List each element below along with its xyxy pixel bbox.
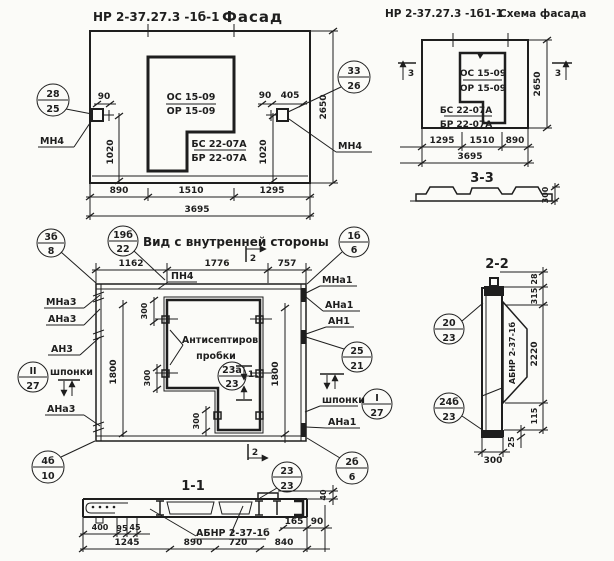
svg-text:25: 25 <box>350 346 363 357</box>
svg-text:3: 3 <box>408 69 414 79</box>
svg-text:22: 22 <box>116 244 129 255</box>
svg-text:23: 23 <box>280 481 293 492</box>
view-opening <box>167 300 260 430</box>
section-mark-2-top: 2 <box>246 246 266 264</box>
svg-text:1б: 1б <box>347 231 361 242</box>
svg-text:4б: 4б <box>41 456 55 467</box>
svg-text:2б: 2б <box>345 457 359 468</box>
facade-dim-890: 890 <box>110 186 129 196</box>
svg-text:23: 23 <box>280 466 293 477</box>
scheme-mark-os: ОС 15-09 <box>460 69 506 79</box>
section-3-3-dim-300: 300 <box>541 186 550 203</box>
facade-mark-bs: БС 22-07А <box>191 139 247 150</box>
s22-dim-25: 25 <box>507 436 516 448</box>
facade-dim-90-right: 90 <box>259 91 272 101</box>
facade-dim-3695: 3695 <box>184 205 209 215</box>
s11-dim-90: 90 <box>311 517 324 527</box>
callout-4b-10: 4б 10 <box>32 441 95 483</box>
svg-text:2: 2 <box>252 448 258 458</box>
s22-dim-28: 28 <box>530 273 539 285</box>
s22-dim-115: 115 <box>530 407 539 424</box>
scheme-drawing: НР 2-37.27.3 -1б1-1 Схема фасада ОС 15-0… <box>385 8 586 205</box>
svg-text:3: 3 <box>555 69 561 79</box>
view-label-shponki-left: шпонки <box>50 367 93 378</box>
facade-dim-1510: 1510 <box>178 186 203 196</box>
facade-dim-2650: 2650 <box>319 94 329 119</box>
s22-dim-315: 315 <box>530 287 539 304</box>
view-label-antiseptic-1: Антисептиров <box>182 335 258 346</box>
view-dim-300a: 300 <box>140 302 149 319</box>
s22-dim-2220: 2220 <box>530 341 540 366</box>
scheme-dim-1510: 1510 <box>469 136 494 146</box>
callout-28-25: 28 25 <box>37 84 92 116</box>
section-mark-3-right: 3 <box>552 61 572 80</box>
s11-dim-45: 45 <box>129 523 141 532</box>
svg-text:23: 23 <box>225 379 238 390</box>
s11-dim-400: 400 <box>92 523 109 532</box>
scheme-dim-890: 890 <box>506 136 525 146</box>
scheme-mark-br: БР 22-07А <box>440 120 492 130</box>
view-dim-1162: 1162 <box>118 259 143 269</box>
facade-mark-or: ОР 15-09 <box>167 106 216 117</box>
blueprint-sheet: НР 2-37.27.3 -1б-1 Фасад ОС 15-09 ОР 15-… <box>0 0 614 561</box>
s11-dim-95: 95 <box>116 524 128 533</box>
view-title: Вид с внутренней стороны <box>143 235 329 249</box>
section-3-3-title: 3-3 <box>470 171 494 186</box>
callout-24b-23: 24б 23 <box>434 393 484 431</box>
svg-text:10: 10 <box>41 471 55 482</box>
view-label-mna3: МНа3 <box>46 297 76 308</box>
view-label-an1: АН1 <box>328 316 350 327</box>
s22-label-abnr: АБНР 2-37-1б <box>507 322 517 385</box>
svg-text:2: 2 <box>250 254 256 264</box>
svg-text:33: 33 <box>347 66 360 77</box>
view-label-ana1: АНа1 <box>325 300 353 311</box>
joint-marks <box>156 501 281 515</box>
callout-20-23: 20 23 <box>434 303 483 344</box>
s22-panel <box>482 288 502 437</box>
svg-text:25: 25 <box>46 104 59 115</box>
s11-dim-1245: 1245 <box>114 538 139 548</box>
facade-mark-br: БР 22-07А <box>191 153 247 164</box>
facade-dim-1295: 1295 <box>259 186 284 196</box>
svg-text:8: 8 <box>48 246 55 257</box>
callout-25-21: 25 21 <box>306 337 372 372</box>
facade-label-mn4-left: МН4 <box>40 136 64 147</box>
section-1-1-drawing: 1-1 40 165 90 400 95 45 1245 890 720 840… <box>79 462 338 552</box>
svg-text:3б: 3б <box>44 232 58 243</box>
s11-dim-40: 40 <box>319 489 328 501</box>
scheme-mark-bs: БС 22-07А <box>440 106 492 116</box>
svg-text:26: 26 <box>347 81 361 92</box>
facade-anchor-right <box>277 109 288 121</box>
view-label-an3: АН3 <box>51 344 73 355</box>
svg-text:1: 1 <box>248 370 254 380</box>
view-label-pn4: ПН4 <box>171 271 194 282</box>
s11-dim-840: 840 <box>275 538 294 548</box>
svg-text:II: II <box>29 366 36 377</box>
facade-mark-os: ОС 15-09 <box>167 92 216 103</box>
scheme-mark-or: ОР 15-09 <box>460 84 506 94</box>
section-mark-3-left: 3 <box>398 61 416 80</box>
facade-dim-1020-right: 1020 <box>259 139 269 164</box>
view-dim-1800-right: 1800 <box>271 361 281 386</box>
view-dim-1776: 1776 <box>204 259 229 269</box>
facade-title-name: Фасад <box>222 8 283 26</box>
svg-text:19б: 19б <box>113 230 133 241</box>
svg-text:28: 28 <box>46 89 60 100</box>
section-2-2-title: 2-2 <box>485 257 509 272</box>
view-dim-300c: 300 <box>192 412 201 429</box>
view-label-ana1-bottom: АНа1 <box>328 417 356 428</box>
inner-view-drawing: Вид с внутренней стороны 19б 22 3б 8 1б … <box>18 226 392 484</box>
s22-dim-300: 300 <box>484 456 503 466</box>
callout-II-27: II 27 <box>18 362 48 392</box>
facade-drawing: НР 2-37.27.3 -1б-1 Фасад ОС 15-09 ОР 15-… <box>37 8 372 220</box>
scheme-dim-2650: 2650 <box>533 71 543 96</box>
section-mark-2-bottom: 2 <box>248 444 268 460</box>
callout-I-27: I 27 <box>362 389 392 419</box>
facade-title-prefix: НР 2-37.27.3 -1б-1 <box>93 10 219 24</box>
view-dim-1800-left: 1800 <box>109 359 119 384</box>
callout-2b-6: 2б 6 <box>307 438 368 484</box>
view-dim-757: 757 <box>278 259 297 269</box>
view-label-ana3-bottom: АНа3 <box>47 404 75 415</box>
section-2-2-drawing: 2-2 АБНР 2-37-1б 20 23 24б 23 28 315 222… <box>434 257 548 466</box>
svg-text:23: 23 <box>442 412 455 423</box>
svg-text:20: 20 <box>442 318 456 329</box>
s11-dim-165: 165 <box>285 517 304 527</box>
facade-dim-90-left: 90 <box>98 92 111 102</box>
facade-anchor-left <box>92 109 103 121</box>
scheme-dim-1295: 1295 <box>429 136 454 146</box>
scheme-title-name: Схема фасада <box>499 8 586 20</box>
svg-text:27: 27 <box>26 381 39 392</box>
svg-text:21: 21 <box>350 361 363 372</box>
svg-text:6: 6 <box>351 245 358 256</box>
view-label-mna1: МНа1 <box>322 275 352 286</box>
section-1-1-title: 1-1 <box>181 479 205 494</box>
view-dim-300b: 300 <box>143 369 152 386</box>
facade-dim-1020-left: 1020 <box>106 139 116 164</box>
svg-text:I: I <box>375 393 379 404</box>
scheme-title-prefix: НР 2-37.27.3 -1б1-1 <box>385 8 503 20</box>
svg-text:23: 23 <box>442 333 455 344</box>
view-label-shponki-right: шпонки <box>322 395 365 406</box>
svg-text:24б: 24б <box>439 397 459 408</box>
section-3-3-profile <box>416 187 552 201</box>
callout-3b-8: 3б 8 <box>37 229 96 283</box>
view-label-antiseptic-2: пробки <box>196 351 236 362</box>
svg-text:27: 27 <box>370 408 383 419</box>
view-label-ana3: АНа3 <box>48 314 76 325</box>
facade-label-mn4-right: МН4 <box>338 141 362 152</box>
facade-dim-405: 405 <box>281 91 300 101</box>
svg-text:6: 6 <box>349 472 356 483</box>
scheme-dim-3695: 3695 <box>457 152 482 162</box>
